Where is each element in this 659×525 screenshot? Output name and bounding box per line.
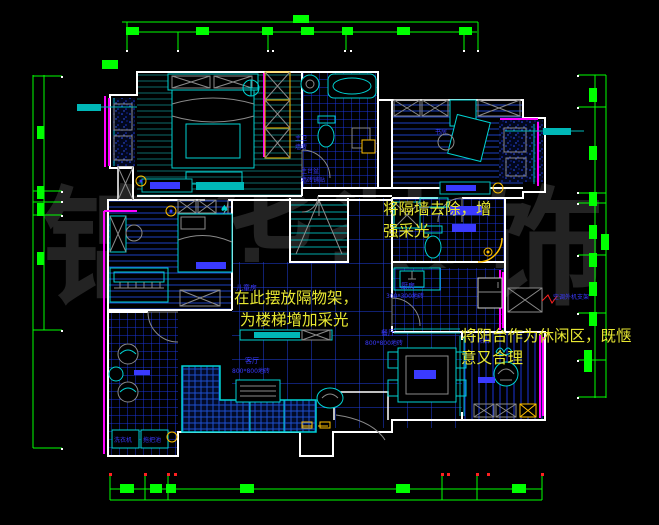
note-balcony-line1: 将阳台作为休闲区，既惬 xyxy=(461,327,632,345)
dimension-red-dots xyxy=(109,473,544,476)
floorplan-drawing: 锦 华 装 饰 xyxy=(0,0,659,525)
mop-sink-label: 拖把池 xyxy=(143,436,161,444)
ac-bracket-label: 空调外机支架 xyxy=(553,293,589,301)
note-shelf-line2: 为楼梯增加采光 xyxy=(240,311,349,329)
master-bed xyxy=(172,90,254,168)
note-balcony-line2: 意又合理 xyxy=(461,348,523,367)
side-chair xyxy=(317,388,343,408)
tub-chair xyxy=(118,382,138,402)
dining-label: 餐厅 xyxy=(381,328,395,337)
spade-icon: ♠ xyxy=(220,204,229,215)
master-bath-tile-label: 墙砖 xyxy=(295,143,307,151)
note-shelf-line1: 在此摆放隔物架， xyxy=(234,289,358,307)
kitchen-tile-label: 300*300地砖 xyxy=(386,292,424,300)
basin-label: 主台盆 xyxy=(301,167,319,175)
small-table xyxy=(109,367,123,381)
cad-floorplan-canvas: 锦 华 装 饰 xyxy=(0,0,659,525)
bath1-right-wall xyxy=(378,72,392,188)
basin-tile-label: 墙砖铺贴 xyxy=(301,176,325,184)
dining-tile-label: 800*800地砖 xyxy=(365,339,403,347)
tub-chair xyxy=(118,344,138,364)
kitchen-label: 厨房 xyxy=(401,281,415,290)
study-label: 书房 xyxy=(435,128,447,136)
basin xyxy=(301,75,319,93)
master-bath-label: 主卫 xyxy=(295,134,307,142)
note-remove-wall-line2: 强采光 xyxy=(383,222,430,240)
living-label: 客厅 xyxy=(245,356,259,365)
note-remove-wall-line1: 将隔墙去除，增 xyxy=(383,200,492,218)
living-tile-label: 800*800地砖 xyxy=(232,367,270,375)
washer-label: 洗衣机 xyxy=(114,436,132,444)
